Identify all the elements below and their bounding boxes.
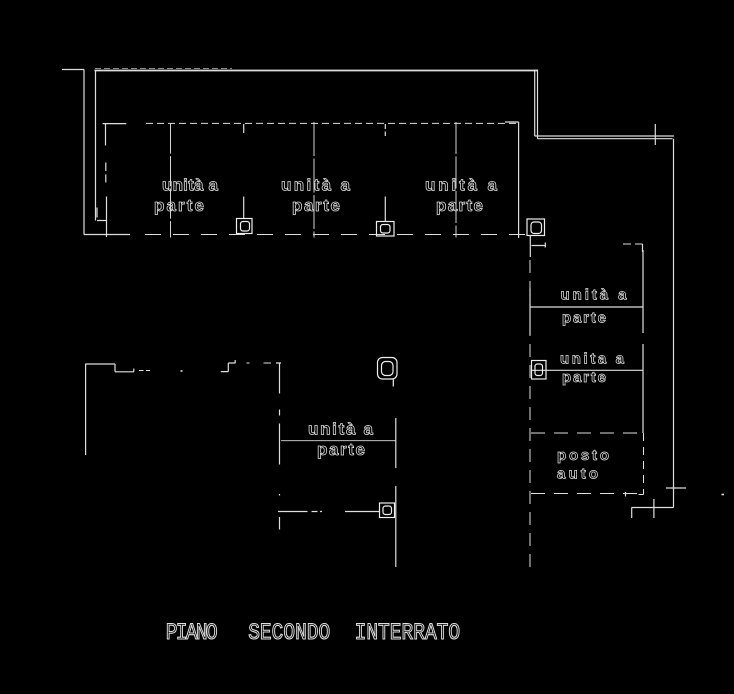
svg-text:unità a: unità a	[162, 176, 219, 195]
svg-text:parte: parte	[317, 440, 365, 459]
svg-text:SECONDO: SECONDO	[248, 621, 330, 647]
svg-text:parte: parte	[154, 196, 204, 215]
svg-text:parte: parte	[562, 369, 606, 386]
svg-text:parte: parte	[292, 196, 340, 215]
svg-text:PIANO: PIANO	[166, 621, 218, 647]
svg-text:parte: parte	[436, 196, 483, 215]
svg-text:unità a: unità a	[308, 420, 374, 439]
svg-text:INTERRATO: INTERRATO	[355, 621, 461, 647]
svg-text:auto: auto	[557, 466, 598, 483]
svg-text:parte: parte	[562, 310, 606, 327]
svg-text:posto: posto	[557, 447, 609, 464]
